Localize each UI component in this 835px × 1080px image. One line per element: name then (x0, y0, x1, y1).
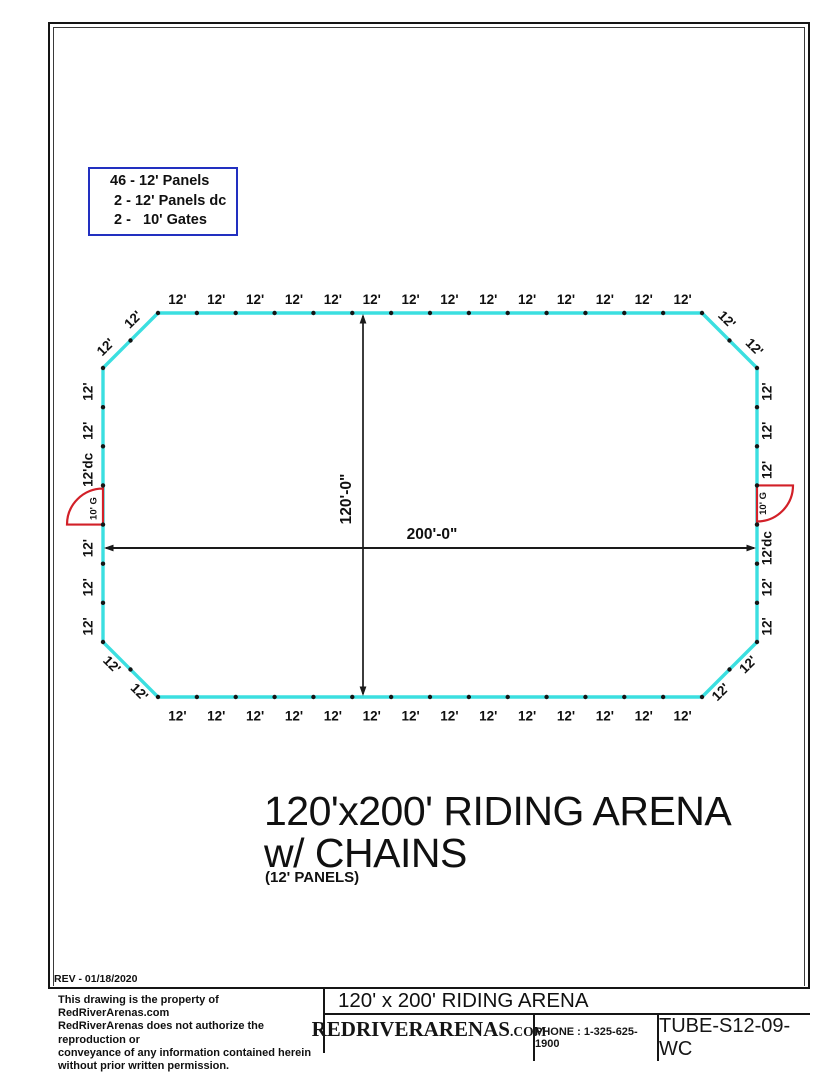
panel-joint-dot (311, 695, 315, 699)
panel-joint-dot (128, 338, 132, 342)
panel-joint-dot (755, 601, 759, 605)
panel-joint-dot (583, 311, 587, 315)
title-block-right: 120' x 200' RIDING ARENA REDRIVERARENAS.… (325, 989, 810, 1053)
panel-joint-dot (755, 444, 759, 448)
width-dimension-label: 200'-0" (407, 526, 458, 543)
panel-joint-dot (755, 562, 759, 566)
panel-joint-dot (101, 444, 105, 448)
panel-length-label: 12' (440, 709, 458, 724)
panel-joint-dot (101, 640, 105, 644)
panel-length-label: 12' (760, 422, 775, 440)
panel-joint-dot (156, 311, 160, 315)
title-block-bottom-row: REDRIVERARENAS.COM PHONE : 1-325-625-190… (325, 1015, 810, 1061)
panel-joint-dot (755, 405, 759, 409)
panel-length-label: 12' (81, 617, 96, 635)
legend-item: 46 - 12' Panels (90, 172, 236, 192)
panel-length-label: 12' (596, 292, 614, 307)
height-dimension-label: 120'-0" (338, 474, 355, 525)
legend-item: 2 - 10' Gates (90, 211, 236, 231)
dim-arrow-left (104, 545, 114, 552)
dim-arrow-right (747, 545, 757, 552)
corner-panel-label: 12' (736, 653, 760, 677)
panel-length-label: 12' (363, 292, 381, 307)
panel-joint-dot (755, 640, 759, 644)
panel-joint-dot (195, 311, 199, 315)
panel-joint-dot (101, 522, 105, 526)
panel-joint-dot (583, 695, 587, 699)
panel-length-label: 12' (479, 709, 497, 724)
panel-joint-dot (544, 311, 548, 315)
panel-length-label: 12'dc (760, 531, 775, 565)
panel-joint-dot (755, 522, 759, 526)
panel-joint-dot (101, 601, 105, 605)
panel-joint-dot (622, 695, 626, 699)
arena-wall (103, 313, 757, 697)
panel-length-label: 12' (760, 461, 775, 479)
brand-website: REDRIVERARENAS.COM (325, 1015, 533, 1061)
drawing-title-line1: 120'x200' RIDING ARENA (264, 788, 731, 835)
panel-length-label: 12' (673, 709, 691, 724)
panel-joint-dot (661, 695, 665, 699)
arena-diagram: 200'-0"120'-0"12'12'12'12'12'12'12'12'12… (0, 0, 835, 1080)
disclaimer-line: RedRiverArenas does not authorize the re… (58, 1020, 317, 1046)
dim-arrow-down (360, 687, 367, 697)
gate-label: 10' G (758, 492, 769, 515)
panel-joint-dot (101, 483, 105, 487)
panel-joint-dot (101, 405, 105, 409)
panel-joint-dot (101, 562, 105, 566)
panel-joint-dot (506, 311, 510, 315)
panel-length-label: 12' (760, 382, 775, 400)
revision-date: REV - 01/18/2020 (54, 973, 137, 985)
panel-joint-dot (389, 311, 393, 315)
panel-length-label: 12' (168, 292, 186, 307)
panel-length-label: 12' (596, 709, 614, 724)
panel-length-label: 12' (518, 292, 536, 307)
legend-item: 2 - 12' Panels dc (90, 192, 236, 212)
panel-joint-dot (350, 311, 354, 315)
panel-joint-dot (622, 311, 626, 315)
panel-length-label: 12' (760, 617, 775, 635)
panel-joint-dot (128, 667, 132, 671)
phone-number: PHONE : 1-325-625-1900 (533, 1015, 657, 1061)
panel-joint-dot (700, 311, 704, 315)
panel-length-label: 12' (760, 578, 775, 596)
panel-joint-dot (195, 695, 199, 699)
panel-length-label: 12' (81, 539, 96, 557)
panel-length-label: 12' (673, 292, 691, 307)
panel-joint-dot (544, 695, 548, 699)
corner-panel-label: 12' (709, 680, 733, 704)
panel-length-label: 12' (246, 709, 264, 724)
panel-length-label: 12' (363, 709, 381, 724)
panel-length-label: 12' (81, 578, 96, 596)
part-number: TUBE-S12-09-WC (657, 1015, 810, 1061)
title-block-drawing-title: 120' x 200' RIDING ARENA (325, 989, 810, 1015)
panel-length-label: 12' (557, 292, 575, 307)
panel-length-label: 12' (324, 709, 342, 724)
panel-length-label: 12' (324, 292, 342, 307)
panel-joint-dot (727, 667, 731, 671)
drawing-sheet: 200'-0"120'-0"12'12'12'12'12'12'12'12'12… (0, 0, 835, 1080)
panel-length-label: 12'dc (81, 452, 96, 486)
drawing-subtitle: (12' PANELS) (265, 869, 359, 886)
panel-length-label: 12' (401, 292, 419, 307)
panel-joint-dot (101, 366, 105, 370)
panel-joint-dot (700, 695, 704, 699)
title-block: This drawing is the property of RedRiver… (48, 987, 810, 1053)
panel-length-label: 12' (207, 292, 225, 307)
panel-joint-dot (156, 695, 160, 699)
panel-joint-dot (350, 695, 354, 699)
panel-legend: 46 - 12' Panels 2 - 12' Panels dc 2 - 10… (88, 167, 238, 236)
panel-length-label: 12' (81, 382, 96, 400)
panel-length-label: 12' (401, 709, 419, 724)
corner-panel-label: 12' (100, 653, 124, 677)
panel-joint-dot (389, 695, 393, 699)
panel-joint-dot (467, 311, 471, 315)
panel-length-label: 12' (207, 709, 225, 724)
panel-joint-dot (234, 695, 238, 699)
panel-length-label: 12' (81, 422, 96, 440)
panel-joint-dot (428, 311, 432, 315)
panel-length-label: 12' (285, 709, 303, 724)
panel-length-label: 12' (479, 292, 497, 307)
panel-joint-dot (755, 483, 759, 487)
dim-arrow-up (360, 314, 367, 324)
panel-joint-dot (311, 311, 315, 315)
panel-joint-dot (428, 695, 432, 699)
panel-length-label: 12' (557, 709, 575, 724)
disclaimer-line: conveyance of any information contained … (58, 1047, 317, 1060)
panel-joint-dot (506, 695, 510, 699)
disclaimer-line: This drawing is the property of RedRiver… (58, 994, 317, 1020)
panel-length-label: 12' (168, 709, 186, 724)
panel-joint-dot (661, 311, 665, 315)
panel-joint-dot (272, 695, 276, 699)
disclaimer: This drawing is the property of RedRiver… (48, 989, 325, 1053)
panel-length-label: 12' (518, 709, 536, 724)
panel-length-label: 12' (285, 292, 303, 307)
panel-length-label: 12' (440, 292, 458, 307)
panel-joint-dot (234, 311, 238, 315)
panel-length-label: 12' (246, 292, 264, 307)
panel-joint-dot (727, 338, 731, 342)
panel-joint-dot (272, 311, 276, 315)
corner-panel-label: 12' (128, 680, 152, 704)
panel-length-label: 12' (635, 709, 653, 724)
gate-label: 10' G (89, 497, 100, 520)
brand-name: REDRIVERARENAS (312, 1017, 510, 1042)
panel-length-label: 12' (635, 292, 653, 307)
disclaimer-line: without prior written permission. (58, 1060, 317, 1073)
panel-joint-dot (755, 366, 759, 370)
panel-joint-dot (467, 695, 471, 699)
